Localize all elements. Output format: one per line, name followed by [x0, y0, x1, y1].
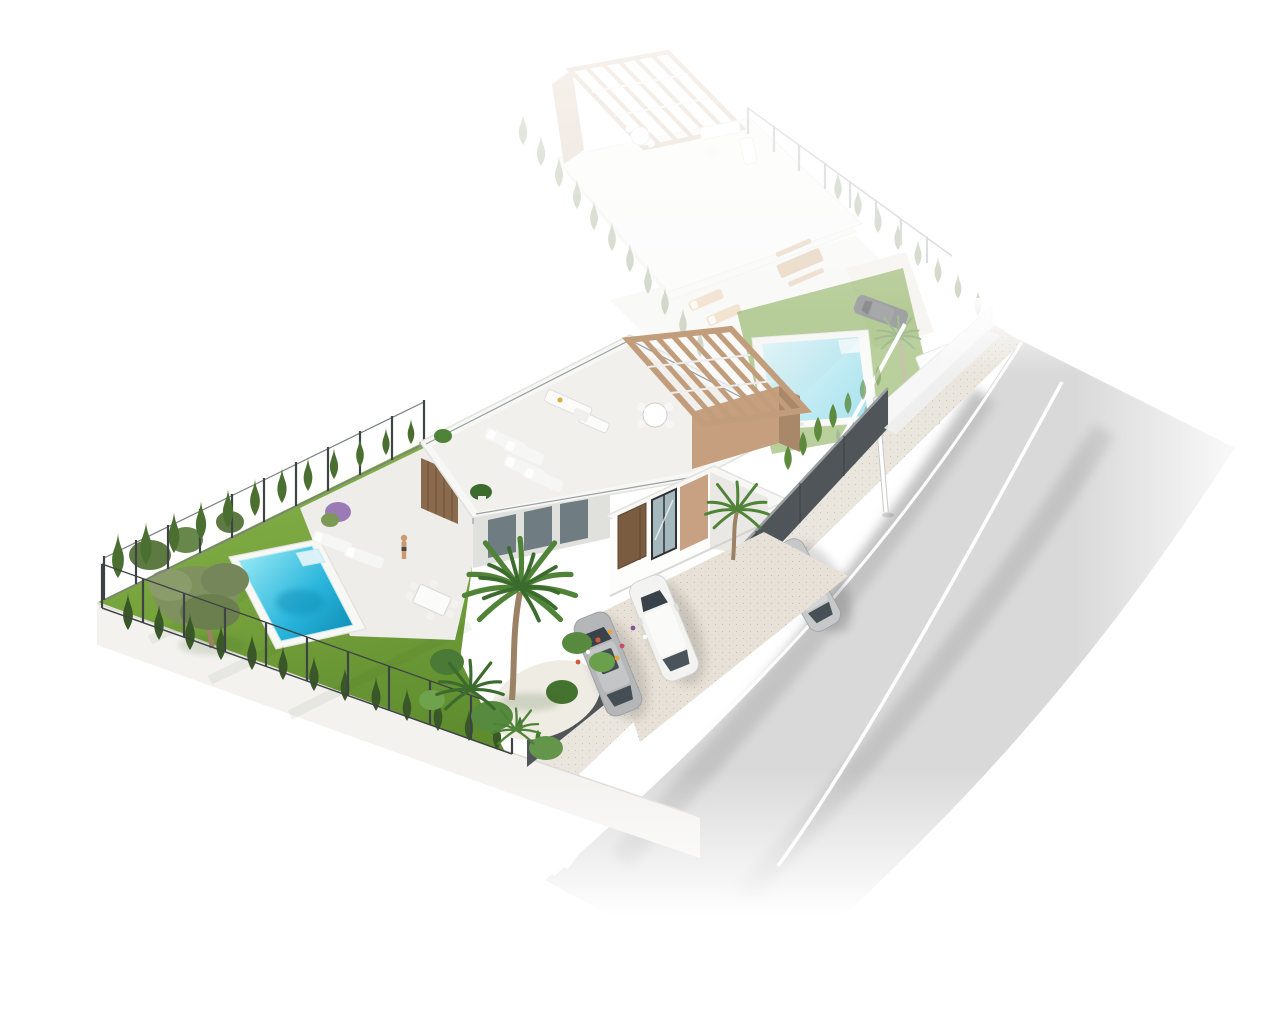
facade-accent-panel	[680, 474, 708, 551]
facade-window	[652, 489, 676, 559]
scene-fade-bottom	[400, 770, 1280, 1024]
pool-deep-patch	[276, 589, 324, 615]
ghost-fade-overlay	[480, 40, 1010, 320]
render-canvas	[0, 0, 1280, 1024]
villa-aerial-render	[0, 0, 1280, 1024]
